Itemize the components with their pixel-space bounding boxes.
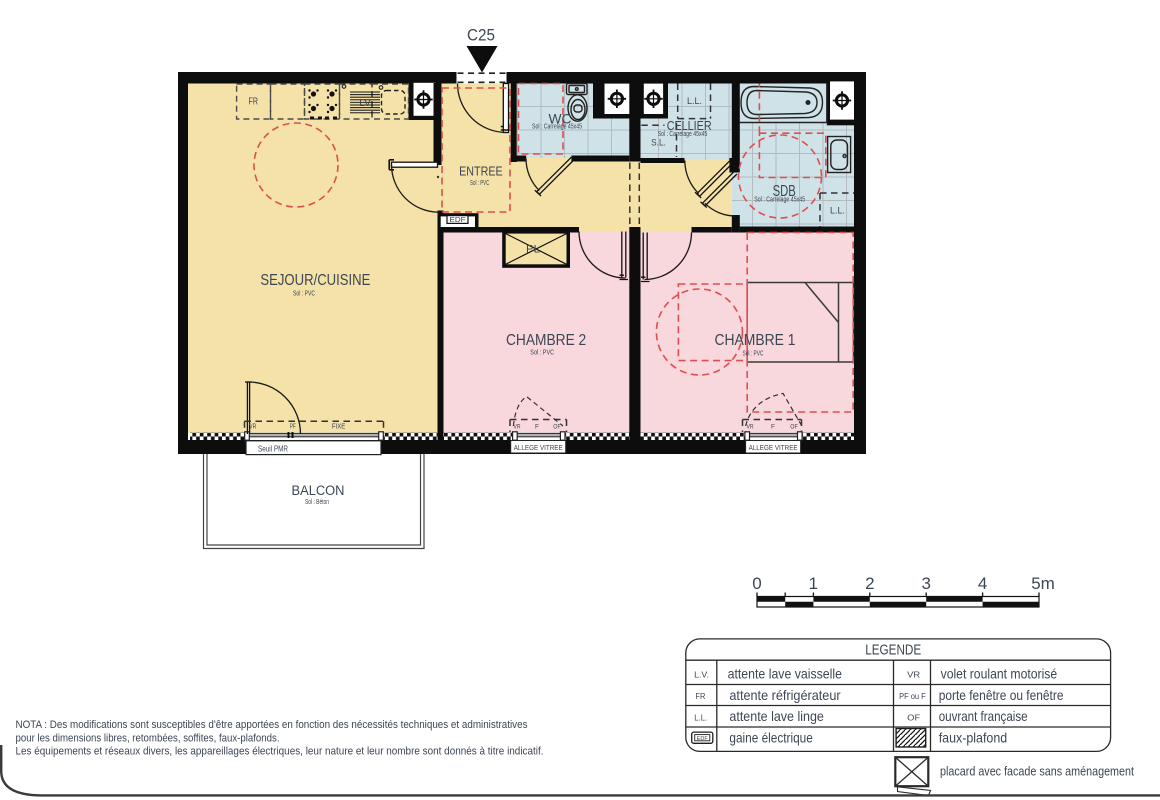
svg-text:Sol : Béton: Sol : Béton — [305, 497, 329, 506]
svg-text:NOTA : Des modifications sont: NOTA : Des modifications sont susceptibl… — [16, 719, 528, 731]
svg-text:5m: 5m — [1031, 574, 1055, 593]
svg-text:FIXE: FIXE — [332, 423, 346, 430]
svg-text:2: 2 — [865, 574, 874, 593]
svg-text:ENTREE: ENTREE — [459, 165, 503, 179]
svg-text:Sol : PVC: Sol : PVC — [293, 288, 315, 297]
svg-text:CHAMBRE 1: CHAMBRE 1 — [715, 332, 796, 349]
svg-text:3: 3 — [921, 574, 930, 593]
svg-text:C25: C25 — [467, 25, 495, 44]
svg-text:EDF: EDF — [697, 736, 708, 742]
svg-text:porte fenêtre ou fenêtre: porte fenêtre ou fenêtre — [939, 687, 1064, 703]
svg-text:ALLEGE VITREE: ALLEGE VITREE — [749, 445, 798, 452]
svg-text:EDF: EDF — [450, 217, 466, 224]
svg-text:F: F — [771, 423, 775, 430]
svg-text:L.L.: L.L. — [830, 205, 845, 215]
svg-text:4: 4 — [978, 574, 987, 593]
svg-text:attente réfrigérateur: attente réfrigérateur — [729, 687, 840, 703]
svg-text:PF: PF — [290, 423, 296, 430]
svg-text:LEGENDE: LEGENDE — [865, 643, 921, 659]
svg-text:attente lave vaisselle: attente lave vaisselle — [728, 666, 843, 682]
svg-text:pour les dimensions libres, re: pour les dimensions libres, retombées, s… — [16, 732, 280, 744]
svg-text:VR: VR — [249, 423, 256, 430]
svg-text:OF: OF — [907, 713, 920, 723]
svg-text:0: 0 — [752, 574, 761, 593]
svg-text:Sol : PVC: Sol : PVC — [743, 348, 764, 357]
svg-text:PF ou F: PF ou F — [899, 692, 926, 701]
svg-text:ouvrant française: ouvrant française — [939, 708, 1028, 724]
svg-text:ALLEGE VITREE: ALLEGE VITREE — [514, 445, 563, 452]
svg-text:1: 1 — [809, 574, 818, 593]
svg-text:FR: FR — [249, 96, 259, 107]
svg-text:L.L.: L.L. — [694, 713, 707, 723]
svg-text:BALCON: BALCON — [292, 483, 345, 498]
svg-text:F: F — [535, 423, 539, 430]
svg-text:S.L.: S.L. — [651, 137, 666, 147]
svg-text:volet roulant motorisé: volet roulant motorisé — [941, 666, 1058, 682]
svg-text:SEJOUR/CUISINE: SEJOUR/CUISINE — [260, 272, 370, 289]
svg-text:VR: VR — [907, 670, 920, 680]
svg-text:Sol : PVC: Sol : PVC — [470, 180, 489, 187]
svg-text:L.L.: L.L. — [687, 96, 702, 106]
svg-text:Sol : Carrelage 45x45: Sol : Carrelage 45x45 — [658, 131, 708, 138]
svg-text:gaine électrique: gaine électrique — [729, 729, 813, 745]
svg-text:PL: PL — [526, 244, 540, 256]
svg-text:Seuil PMR: Seuil PMR — [258, 443, 288, 453]
svg-text:Sol : Carrelage 45x45: Sol : Carrelage 45x45 — [532, 124, 582, 131]
svg-text:placard avec facade sans aména: placard avec facade sans aménagement — [940, 765, 1134, 779]
svg-text:L.V.: L.V. — [694, 670, 709, 680]
svg-text:LV: LV — [359, 98, 371, 109]
svg-text:attente lave linge: attente lave linge — [729, 708, 824, 724]
svg-text:Sol : PVC: Sol : PVC — [530, 348, 554, 357]
svg-text:Les équipements et réseaux div: Les équipements et réseaux divers, les a… — [16, 746, 544, 758]
svg-text:VR: VR — [514, 423, 521, 430]
svg-text:OF: OF — [553, 423, 561, 430]
svg-text:VR: VR — [747, 423, 754, 430]
svg-text:Sol : Carrelage 45x45: Sol : Carrelage 45x45 — [754, 197, 805, 204]
svg-text:OF: OF — [790, 423, 798, 430]
svg-text:FR: FR — [695, 691, 705, 701]
svg-text:faux-plafond: faux-plafond — [939, 729, 1008, 745]
